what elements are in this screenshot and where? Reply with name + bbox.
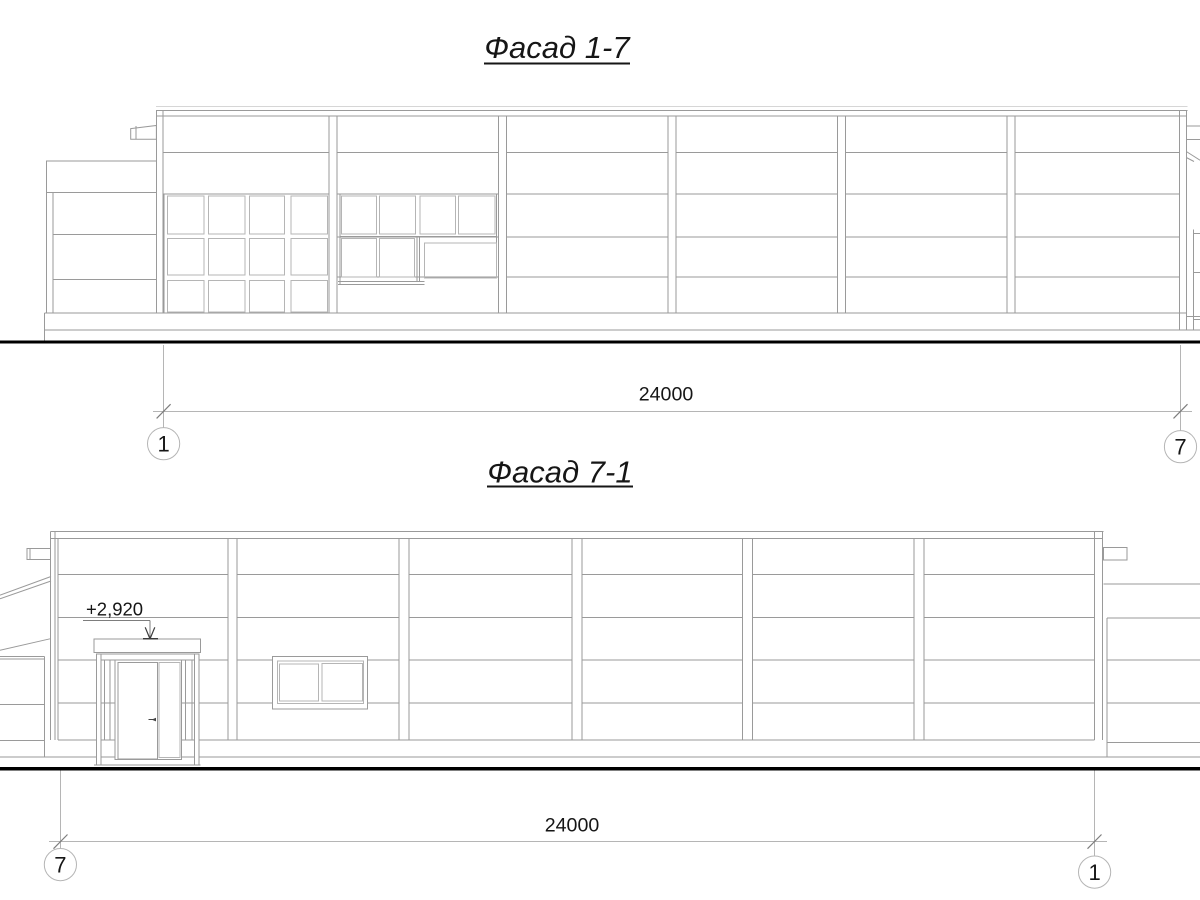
svg-text:Фасад 1-7: Фасад 1-7 bbox=[484, 30, 631, 65]
svg-text:+2,920: +2,920 bbox=[86, 599, 143, 620]
svg-text:Фасад 7-1: Фасад 7-1 bbox=[487, 455, 632, 490]
svg-text:1: 1 bbox=[157, 432, 169, 457]
svg-text:24000: 24000 bbox=[545, 815, 600, 837]
svg-text:7: 7 bbox=[54, 852, 66, 877]
svg-text:1: 1 bbox=[1088, 860, 1100, 885]
svg-text:24000: 24000 bbox=[639, 384, 694, 406]
svg-text:7: 7 bbox=[1174, 435, 1186, 460]
